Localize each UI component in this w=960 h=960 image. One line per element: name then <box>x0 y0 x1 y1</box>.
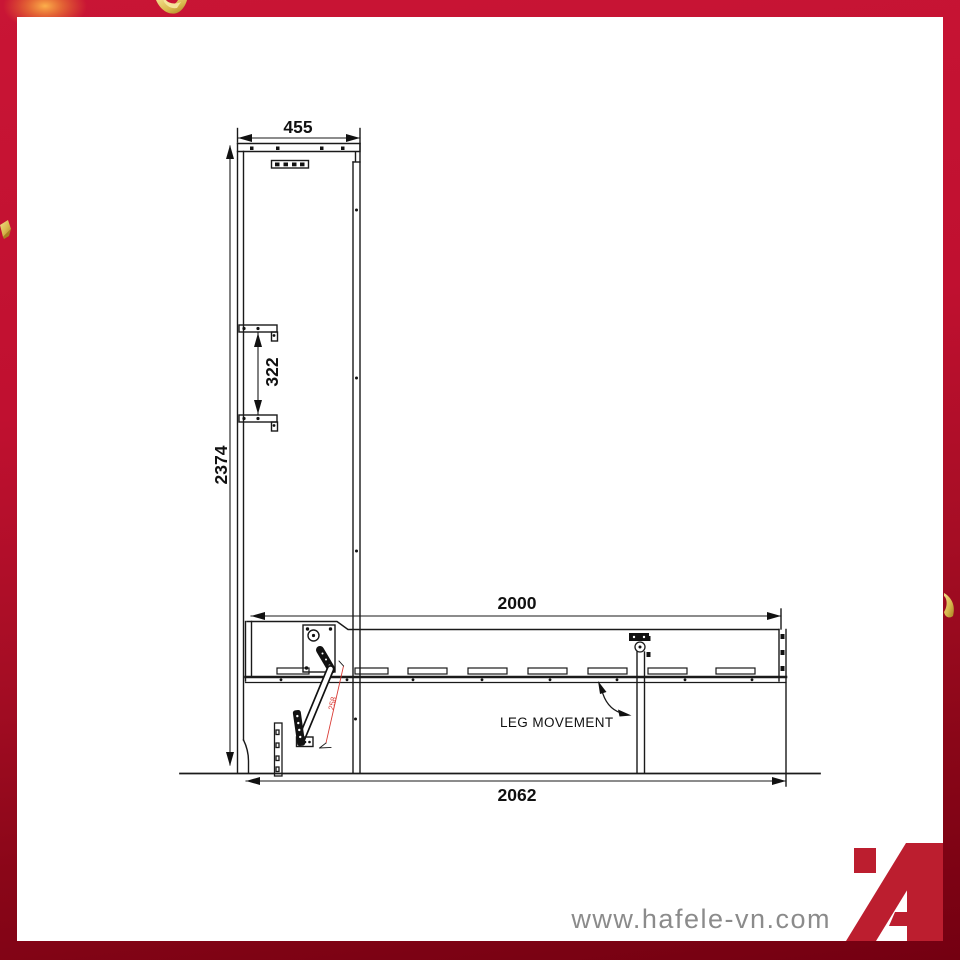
brand-logo-a <box>843 837 943 941</box>
logo-a-right-leg <box>907 843 943 941</box>
logo-square-mark <box>854 848 876 873</box>
page-frame: www.hafele-vn.com <box>0 0 960 960</box>
drawing-canvas: www.hafele-vn.com <box>17 17 943 941</box>
website-link[interactable]: www.hafele-vn.com <box>571 904 831 935</box>
confetti-right-piece <box>944 593 954 617</box>
